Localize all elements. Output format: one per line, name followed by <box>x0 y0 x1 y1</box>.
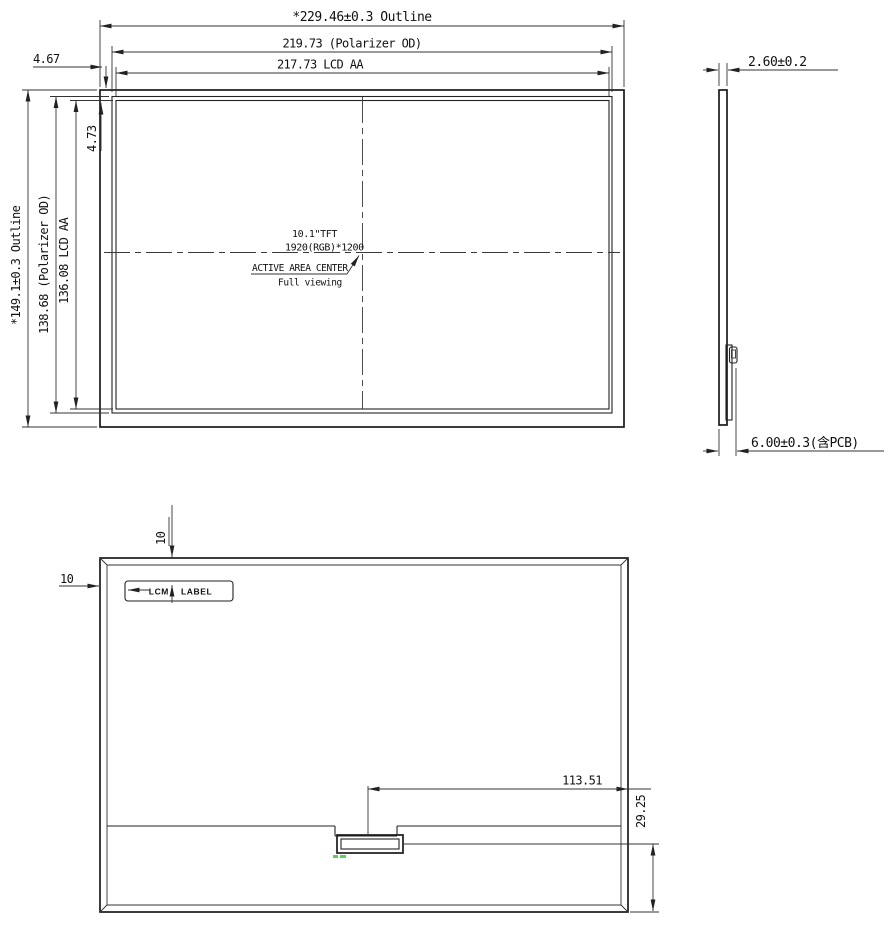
rear-chamfer-tl <box>100 558 107 565</box>
rear-chamfer-br <box>621 905 628 912</box>
dim-text-outline-width: *229.46±0.3 Outline <box>292 10 432 25</box>
dim-text-polarizer-width: 219.73 (Polarizer OD) <box>282 37 421 51</box>
lcd-outline-drawing: 10.1"TFT 1920(RGB)*1200 ACTIVE AREA CENT… <box>0 0 888 949</box>
side-view: 2.60±0.2 6.00±0.3(含PCB) <box>703 55 884 456</box>
rear-dimensions: 10 10 113.51 29.25 <box>59 505 659 912</box>
dim-text-lcd-height: 136.08 LCD AA <box>57 217 71 304</box>
label-text-lcm: LCM <box>149 587 169 597</box>
dim-text-thickness-panel: 2.60±0.2 <box>748 55 807 70</box>
front-outline-rect <box>100 90 624 427</box>
front-left-dimensions: *149.1±0.3 Outline 138.68 (Polarizer OD)… <box>9 90 113 427</box>
dim-text-connector-from-right: 113.51 <box>562 774 602 788</box>
tiny-green-marking <box>340 855 346 858</box>
dim-text-polarizer-height: 138.68 (Polarizer OD) <box>37 195 51 334</box>
label-text-label: LABEL <box>181 587 212 597</box>
front-view: 10.1"TFT 1920(RGB)*1200 ACTIVE AREA CENT… <box>100 90 624 427</box>
rear-connector-outer <box>337 835 403 853</box>
rear-outline-rect <box>100 558 628 912</box>
note-leader-arrow <box>347 256 359 275</box>
dim-thickness-panel: 2.60±0.2 <box>703 55 838 86</box>
dim-text-label-from-left: 10 <box>60 572 74 586</box>
rear-view: LCM LABEL <box>100 558 628 912</box>
label-box-rect <box>125 581 233 601</box>
dim-text-thickness-total: 6.00±0.3(含PCB) <box>751 435 859 451</box>
dim-text-connector-from-bottom: 29.25 <box>634 795 648 828</box>
note-active-area-center: ACTIVE AREA CENTER <box>252 263 348 274</box>
dim-text-label-from-top: 10 <box>154 531 168 545</box>
note-panel-size: 10.1"TFT <box>292 229 337 240</box>
dim-text-edge-horizontal: 4.67 <box>33 52 60 66</box>
active-area-note: 10.1"TFT 1920(RGB)*1200 ACTIVE AREA CENT… <box>251 229 364 289</box>
mechanical-drawing-page: 10.1"TFT 1920(RGB)*1200 ACTIVE AREA CENT… <box>0 0 888 949</box>
front-polarizer-rect <box>112 97 612 414</box>
note-full-viewing: Full viewing <box>278 278 342 289</box>
dim-text-outline-height: *149.1±0.3 Outline <box>9 205 23 325</box>
dim-edge-horizontal: 4.67 <box>33 52 106 88</box>
dim-text-lcd-width: 217.73 LCD AA <box>277 58 364 72</box>
rear-connector-inner <box>341 839 399 849</box>
front-top-dimensions: *229.46±0.3 Outline 219.73 (Polarizer OD… <box>33 10 624 96</box>
dim-edge-vertical: 4.73 <box>85 103 101 152</box>
rear-chamfer-bl <box>100 905 107 912</box>
rear-chamfer-tr <box>621 558 628 565</box>
note-resolution: 1920(RGB)*1200 <box>285 243 364 254</box>
lcm-label-box: LCM LABEL <box>125 581 233 601</box>
dim-connector-from-right: 113.51 <box>368 774 651 837</box>
dim-thickness-total: 6.00±0.3(含PCB) <box>703 368 884 456</box>
dim-text-edge-vertical: 4.73 <box>85 125 99 152</box>
tiny-green-marking <box>333 855 338 858</box>
